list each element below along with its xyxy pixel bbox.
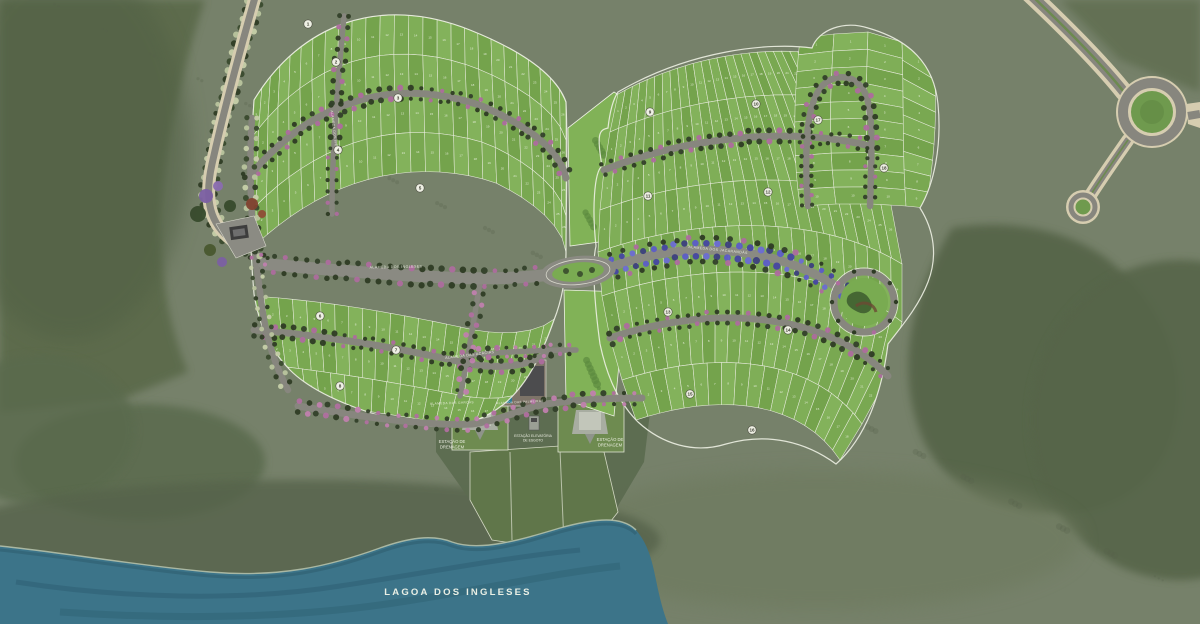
svg-text:10: 10 [753, 102, 759, 107]
svg-text:17: 17 [818, 357, 822, 361]
svg-text:10: 10 [690, 83, 694, 87]
svg-text:11: 11 [373, 156, 376, 160]
svg-text:18: 18 [759, 72, 763, 76]
svg-text:20: 20 [499, 131, 503, 135]
svg-text:19: 19 [485, 88, 489, 92]
svg-text:23: 23 [537, 191, 541, 195]
svg-text:12: 12 [386, 113, 390, 117]
svg-text:21: 21 [510, 101, 514, 105]
svg-text:13: 13 [792, 395, 796, 399]
svg-text:15: 15 [795, 348, 799, 352]
svg-text:11: 11 [705, 120, 708, 124]
svg-text:26: 26 [889, 228, 893, 232]
masterplan-map: 1234567891011121314151617181920212223242… [0, 0, 1200, 624]
svg-text:14: 14 [436, 338, 440, 342]
svg-text:19: 19 [836, 260, 840, 264]
svg-text:21: 21 [834, 209, 838, 213]
svg-text:16: 16 [827, 415, 831, 419]
svg-text:5: 5 [419, 186, 422, 191]
svg-text:10: 10 [887, 195, 891, 199]
svg-text:2: 2 [335, 60, 338, 65]
svg-text:10: 10 [706, 204, 710, 208]
svg-text:11: 11 [404, 399, 407, 403]
svg-text:12: 12 [780, 390, 784, 394]
quadra-badge: 7 [392, 346, 400, 354]
svg-text:13: 13 [422, 335, 426, 339]
svg-text:25: 25 [555, 138, 559, 142]
svg-text:16: 16 [445, 152, 449, 156]
svg-text:11: 11 [646, 194, 651, 199]
svg-text:15: 15 [428, 35, 432, 39]
svg-text:15: 15 [445, 374, 449, 378]
quadra-badge: 12 [764, 188, 772, 196]
svg-text:24: 24 [547, 164, 551, 168]
drainage-station-label-east: DRENAGEM [598, 443, 623, 448]
svg-text:16: 16 [471, 409, 475, 413]
svg-text:15: 15 [816, 407, 820, 411]
svg-text:19: 19 [840, 369, 844, 373]
svg-text:17: 17 [764, 114, 768, 118]
quadra-badge: 5 [416, 184, 424, 192]
svg-text:11: 11 [717, 203, 720, 207]
svg-text:22: 22 [845, 212, 849, 216]
svg-text:23: 23 [533, 80, 537, 84]
svg-text:12: 12 [729, 202, 733, 206]
svg-text:10: 10 [732, 338, 736, 342]
svg-text:13: 13 [402, 151, 406, 155]
svg-text:24: 24 [544, 90, 548, 94]
svg-text:10: 10 [357, 78, 361, 82]
svg-text:18: 18 [822, 307, 826, 311]
svg-text:16: 16 [807, 352, 811, 356]
svg-text:14: 14 [415, 111, 419, 115]
svg-text:17: 17 [815, 118, 821, 123]
svg-text:14: 14 [752, 201, 756, 205]
svg-text:21: 21 [513, 174, 517, 178]
svg-text:17: 17 [810, 303, 814, 307]
svg-text:12: 12 [715, 119, 719, 123]
svg-text:11: 11 [393, 364, 396, 368]
quadra-badge: 16 [748, 426, 756, 434]
svg-text:17: 17 [751, 73, 755, 77]
svg-text:11: 11 [767, 386, 770, 390]
svg-text:20: 20 [777, 71, 781, 75]
svg-text:23: 23 [536, 154, 540, 158]
svg-text:6: 6 [319, 314, 322, 319]
svg-text:22: 22 [526, 182, 530, 186]
svg-text:17: 17 [458, 116, 462, 120]
quadra-badge: 17 [814, 116, 822, 124]
svg-text:12: 12 [758, 340, 762, 344]
quadra-badge: 6 [316, 312, 324, 320]
svg-text:20: 20 [848, 264, 852, 268]
svg-text:21: 21 [512, 138, 516, 142]
svg-text:1: 1 [307, 22, 310, 27]
svg-text:15: 15 [744, 115, 748, 119]
svg-text:14: 14 [773, 296, 777, 300]
svg-text:11: 11 [371, 35, 374, 39]
svg-text:10: 10 [390, 397, 394, 401]
svg-text:16: 16 [442, 38, 446, 42]
svg-text:21: 21 [785, 71, 789, 75]
svg-text:17: 17 [776, 156, 780, 160]
svg-text:16: 16 [444, 114, 448, 118]
svg-text:18: 18 [881, 166, 887, 171]
drainage-station-label-east: ESTAÇÃO DE [597, 437, 624, 442]
svg-text:12: 12 [748, 293, 752, 297]
quadra-badge: 14 [784, 326, 792, 334]
svg-text:12: 12 [387, 153, 391, 157]
svg-text:12: 12 [386, 73, 390, 77]
svg-text:10: 10 [753, 384, 757, 388]
svg-text:14: 14 [734, 116, 738, 120]
svg-text:15: 15 [430, 112, 434, 116]
svg-text:20: 20 [501, 167, 505, 171]
svg-text:19: 19 [768, 71, 772, 75]
svg-text:26: 26 [561, 113, 565, 117]
svg-text:11: 11 [372, 115, 375, 119]
svg-text:13: 13 [733, 158, 737, 162]
svg-text:13: 13 [665, 310, 671, 315]
svg-text:25: 25 [556, 212, 560, 216]
svg-text:12: 12 [707, 79, 711, 83]
lagoon-label: LAGOA DOS INGLESES [384, 587, 531, 598]
svg-text:12: 12 [385, 33, 389, 37]
svg-text:20: 20 [498, 94, 502, 98]
svg-text:24: 24 [547, 201, 551, 205]
quadra-badge: 18 [880, 164, 888, 172]
svg-text:16: 16 [798, 300, 802, 304]
svg-text:13: 13 [725, 118, 729, 122]
masterplan-canvas: 1234567891011121314151617181920212223242… [0, 0, 1200, 624]
svg-text:13: 13 [419, 369, 423, 373]
svg-text:13: 13 [400, 72, 404, 76]
svg-text:18: 18 [845, 435, 849, 439]
svg-text:26: 26 [562, 188, 566, 192]
svg-text:20: 20 [851, 376, 855, 380]
drainage-station-label-west: DRENAGEM [440, 445, 465, 450]
svg-text:18: 18 [474, 157, 478, 161]
svg-text:15: 15 [755, 157, 759, 161]
svg-text:22: 22 [521, 72, 525, 76]
svg-text:18: 18 [774, 114, 778, 118]
svg-text:10: 10 [815, 195, 819, 199]
svg-text:14: 14 [432, 371, 436, 375]
svg-text:19: 19 [498, 380, 502, 384]
svg-text:19: 19 [784, 114, 788, 118]
quadra-badge: 8 [336, 382, 344, 390]
svg-text:10: 10 [695, 122, 699, 126]
quadra-badge: 9 [646, 108, 654, 116]
svg-text:16: 16 [742, 74, 746, 78]
pump-station-label: DE ESGOTO [523, 439, 543, 443]
svg-text:22: 22 [869, 393, 873, 397]
svg-text:19: 19 [483, 52, 487, 56]
svg-text:14: 14 [414, 72, 418, 76]
svg-text:15: 15 [785, 298, 789, 302]
quadra-badge: 13 [664, 308, 672, 316]
svg-text:17: 17 [459, 154, 463, 158]
svg-text:15: 15 [687, 392, 693, 397]
drainage-station-label-west: ESTAÇÃO DE [439, 439, 466, 444]
svg-text:14: 14 [744, 157, 748, 161]
svg-text:13: 13 [741, 201, 745, 205]
svg-text:15: 15 [764, 201, 768, 205]
svg-text:17: 17 [485, 409, 489, 413]
svg-text:19: 19 [486, 125, 490, 129]
svg-text:13: 13 [770, 342, 774, 346]
svg-text:25: 25 [878, 223, 882, 227]
svg-text:20: 20 [511, 379, 515, 383]
quadra-badge: 15 [686, 390, 694, 398]
svg-text:22: 22 [523, 109, 527, 113]
svg-text:12: 12 [722, 159, 726, 163]
svg-text:12: 12 [409, 332, 413, 336]
svg-text:12: 12 [406, 366, 410, 370]
svg-text:11: 11 [745, 339, 748, 343]
svg-text:14: 14 [804, 400, 808, 404]
svg-text:10: 10 [359, 159, 363, 163]
svg-text:16: 16 [443, 76, 447, 80]
svg-text:11: 11 [735, 293, 738, 297]
svg-text:20: 20 [496, 58, 500, 62]
svg-text:17: 17 [787, 202, 791, 206]
svg-text:25: 25 [554, 100, 558, 104]
svg-text:24: 24 [867, 219, 871, 223]
svg-text:18: 18 [829, 363, 833, 367]
svg-text:16: 16 [765, 156, 769, 160]
quadra-badge: 11 [644, 192, 652, 200]
svg-text:23: 23 [535, 117, 539, 121]
svg-text:15: 15 [429, 73, 433, 77]
svg-text:19: 19 [488, 161, 492, 165]
svg-text:17: 17 [472, 379, 476, 383]
svg-text:13: 13 [760, 294, 764, 298]
svg-text:11: 11 [395, 330, 398, 334]
svg-text:14: 14 [416, 150, 420, 154]
svg-text:14: 14 [444, 406, 448, 410]
quadra-badge: 2 [332, 58, 340, 66]
svg-text:12: 12 [765, 190, 771, 195]
svg-text:11: 11 [371, 75, 374, 79]
svg-text:14: 14 [782, 345, 786, 349]
svg-text:17: 17 [457, 79, 461, 83]
svg-text:18: 18 [787, 157, 791, 161]
pump-station-label: ESTAÇÃO ELEVATÓRIA [514, 433, 552, 438]
svg-text:14: 14 [725, 76, 729, 80]
svg-text:18: 18 [485, 380, 489, 384]
svg-text:22: 22 [524, 145, 528, 149]
svg-text:16: 16 [749, 428, 755, 433]
svg-text:15: 15 [431, 150, 435, 154]
svg-text:15: 15 [450, 341, 454, 345]
svg-text:18: 18 [470, 47, 474, 51]
svg-text:10: 10 [700, 162, 704, 166]
svg-text:7: 7 [395, 348, 398, 353]
svg-text:9: 9 [649, 110, 652, 115]
svg-text:18: 18 [471, 83, 475, 87]
svg-text:23: 23 [879, 335, 883, 339]
svg-text:17: 17 [837, 425, 841, 429]
svg-text:10: 10 [851, 194, 855, 198]
svg-text:10: 10 [380, 362, 384, 366]
svg-text:26: 26 [562, 150, 566, 154]
svg-text:16: 16 [754, 115, 758, 119]
svg-text:13: 13 [716, 77, 720, 81]
svg-text:10: 10 [381, 327, 385, 331]
svg-text:21: 21 [860, 384, 864, 388]
svg-text:3: 3 [397, 96, 400, 101]
svg-text:26: 26 [562, 225, 566, 229]
svg-text:15: 15 [733, 75, 737, 79]
svg-text:13: 13 [401, 111, 405, 115]
quadra-badge: 10 [752, 100, 760, 108]
svg-text:15: 15 [458, 408, 462, 412]
svg-text:18: 18 [473, 120, 477, 124]
svg-text:14: 14 [785, 328, 791, 333]
svg-text:10: 10 [358, 119, 362, 123]
svg-text:20: 20 [822, 207, 826, 211]
svg-text:12: 12 [417, 401, 421, 405]
svg-text:14: 14 [414, 33, 418, 37]
svg-text:16: 16 [776, 202, 780, 206]
svg-text:13: 13 [400, 33, 404, 37]
quadra-badge: 3 [394, 94, 402, 102]
svg-text:11: 11 [711, 160, 714, 164]
svg-text:10: 10 [357, 38, 361, 42]
quadra-badge: 1 [304, 20, 312, 28]
svg-text:8: 8 [339, 384, 342, 389]
svg-text:17: 17 [456, 42, 460, 46]
svg-text:23: 23 [856, 215, 860, 219]
svg-text:11: 11 [699, 81, 702, 85]
svg-text:21: 21 [509, 65, 513, 69]
svg-text:24: 24 [545, 127, 549, 131]
svg-text:10: 10 [722, 293, 726, 297]
svg-text:18: 18 [823, 257, 827, 261]
